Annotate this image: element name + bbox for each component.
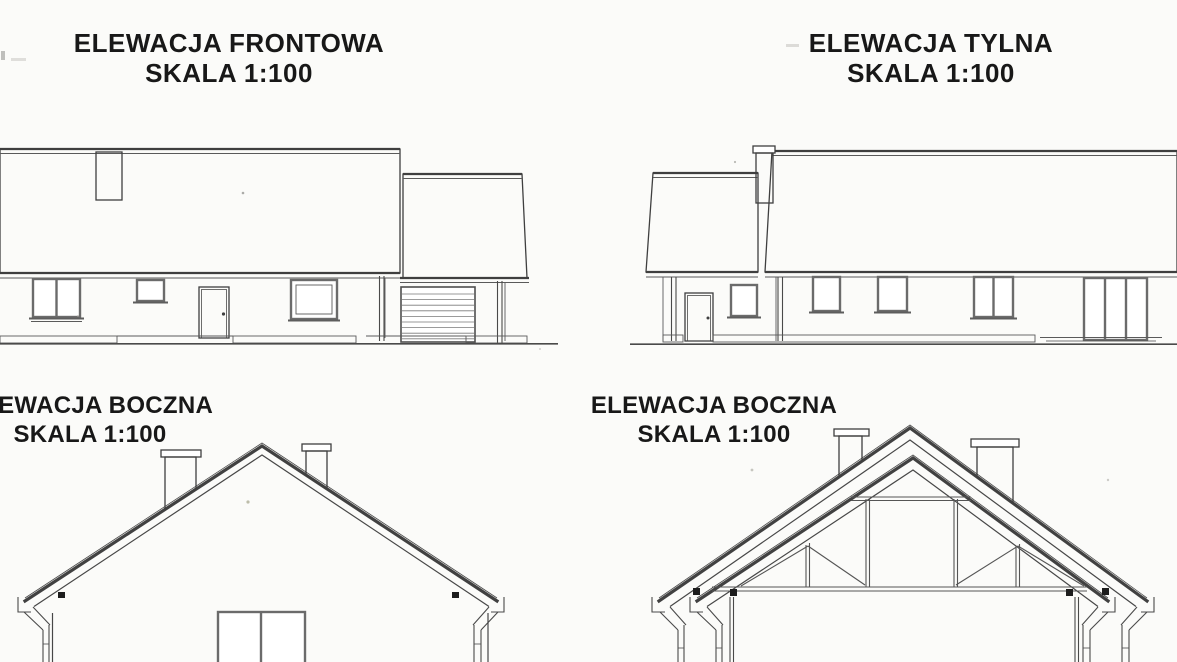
elevation-sheet [0, 0, 1177, 662]
paver-strip [663, 335, 683, 342]
front-elevation-title-block: ELEWACJA FRONTOWA SKALA 1:100 [74, 28, 384, 88]
rear-garage-roof [646, 173, 758, 272]
section-wall-right [1075, 597, 1079, 662]
snow-guard-right [452, 592, 459, 598]
side-left-elevation-scale: SKALA 1:100 [0, 420, 213, 449]
front-downspout-right [498, 281, 503, 343]
front-elevation-title: ELEWACJA FRONTOWA [74, 28, 384, 58]
truss-diagonals [741, 546, 1084, 586]
front-window-right [288, 280, 340, 321]
side-right-elevation-title: ELEWACJA BOCZNA [591, 391, 837, 420]
rear-window-1 [809, 277, 844, 313]
truss-center-posts [866, 499, 958, 587]
side-left-elevation-drawing [18, 443, 504, 662]
side-right-elevation-title-block: ELEWACJA BOCZNA SKALA 1:100 [591, 391, 837, 449]
truss-chimney-right [971, 439, 1019, 503]
rear-window-small [727, 285, 761, 318]
front-elevation-scale: SKALA 1:100 [74, 58, 384, 88]
gutter-downspout-right-inner [1082, 597, 1115, 662]
rear-eaves-fascia [646, 272, 1177, 277]
side-left-elevation-title-block: ELEWACJA BOCZNA SKALA 1:100 [0, 391, 213, 449]
truss-anchor-markers [693, 588, 1109, 596]
paver-strip [713, 335, 1035, 342]
gable-chimney-left [161, 450, 201, 510]
gable-roof-band [25, 443, 497, 607]
door-handle [707, 317, 710, 320]
rear-door [685, 293, 713, 341]
rear-elevation-scale: SKALA 1:100 [809, 58, 1053, 88]
gable-chimney-right [302, 444, 331, 489]
door-handle [222, 312, 225, 315]
rear-elevation-title-block: ELEWACJA TYLNA SKALA 1:100 [809, 28, 1053, 88]
paver-strip [233, 336, 356, 343]
front-elevation-drawing [0, 149, 558, 344]
section-walls [730, 597, 1079, 662]
section-wall-left [730, 597, 734, 662]
front-downspout-left [380, 276, 385, 341]
front-roof-chimney [96, 152, 122, 200]
rear-main-roof [765, 151, 1177, 272]
front-garage-roof [403, 174, 527, 278]
side-right-elevation-drawing [652, 425, 1154, 662]
side-left-elevation-title: ELEWACJA BOCZNA [0, 391, 213, 420]
rear-elevation-drawing [630, 146, 1177, 344]
front-window-double [29, 279, 84, 322]
gutter-downspout-left-inner [690, 597, 723, 662]
rear-downspout-mid [778, 277, 783, 341]
front-main-roof [0, 149, 400, 273]
rear-elevation-title: ELEWACJA TYLNA [809, 28, 1053, 58]
front-entry-door [199, 287, 229, 338]
truss-bottom-chord [712, 587, 1087, 591]
paver-strip [0, 336, 117, 343]
rear-window-double [970, 277, 1017, 319]
rear-window-2 [874, 277, 911, 313]
snow-guard-left [58, 592, 65, 598]
gable-window [218, 612, 305, 662]
front-garage-door [401, 287, 475, 342]
gutter-downspout-left [18, 597, 50, 662]
rear-downspout-left [672, 277, 677, 341]
gutter-downspout-right-outer [1121, 597, 1154, 662]
side-right-elevation-scale: SKALA 1:100 [591, 420, 837, 449]
rear-sliding-door [1084, 278, 1147, 340]
front-window-small [133, 280, 168, 303]
gutter-downspout-left-outer [652, 597, 686, 662]
